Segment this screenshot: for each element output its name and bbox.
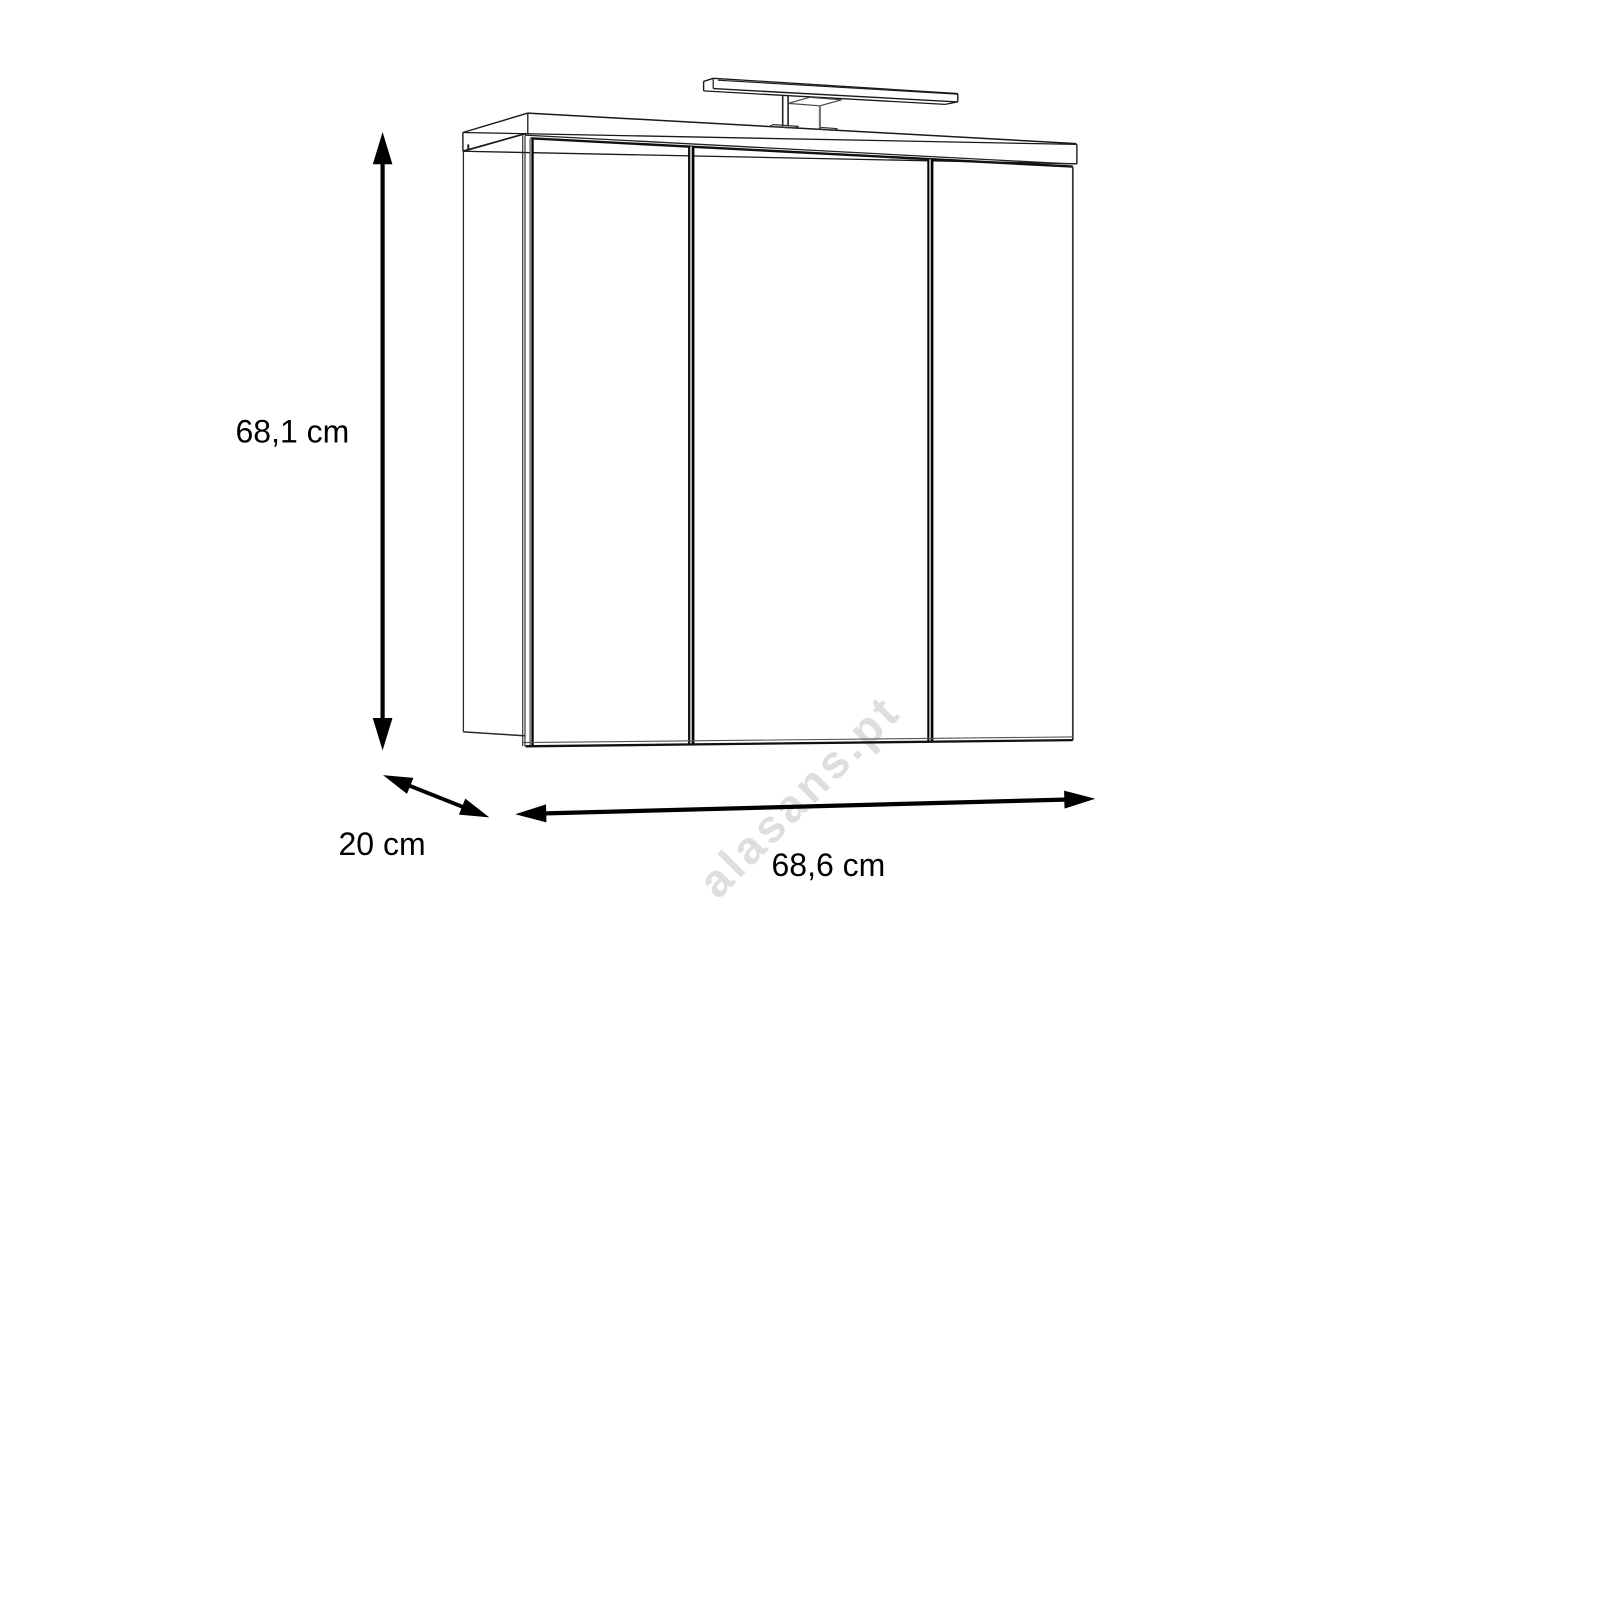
svg-text:20 cm: 20 cm (339, 826, 426, 862)
svg-text:68,1 cm: 68,1 cm (236, 414, 350, 450)
svg-text:68,6 cm: 68,6 cm (772, 847, 886, 883)
